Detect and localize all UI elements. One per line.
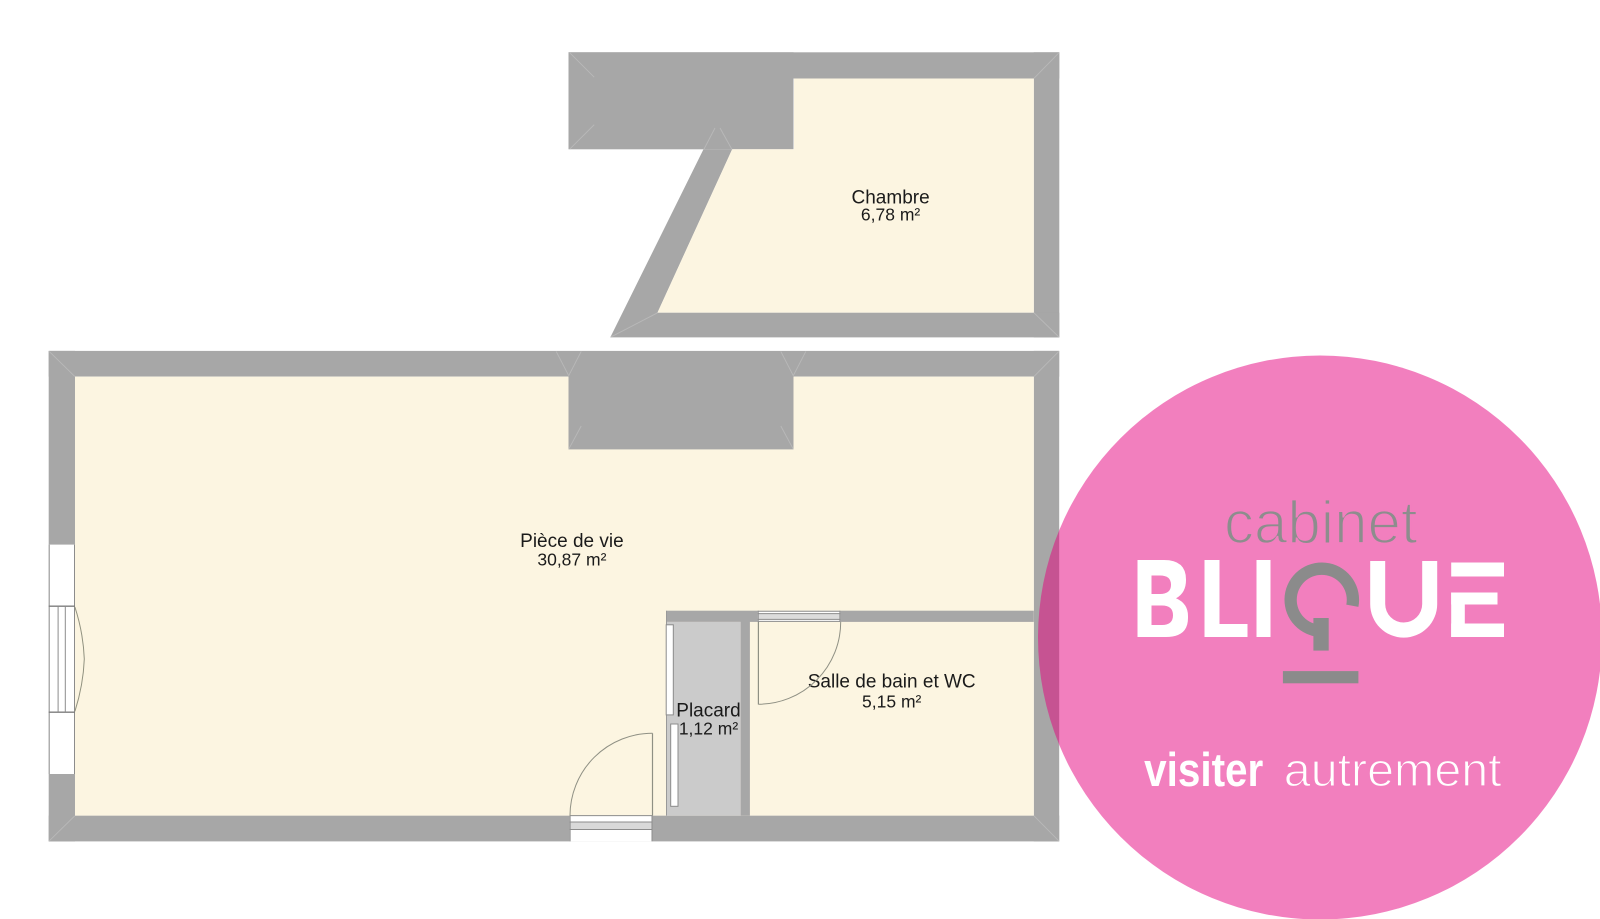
svg-text:1,12 m²: 1,12 m² bbox=[679, 718, 738, 738]
svg-text:cabinet: cabinet bbox=[1224, 489, 1418, 556]
svg-text:5,15 m²: 5,15 m² bbox=[862, 691, 921, 711]
svg-text:30,87 m²: 30,87 m² bbox=[537, 549, 606, 569]
svg-text:Salle de bain et WC: Salle de bain et WC bbox=[808, 672, 976, 693]
svg-text:autrement: autrement bbox=[1284, 743, 1502, 796]
svg-text:6,78 m²: 6,78 m² bbox=[861, 204, 920, 224]
svg-text:visiter: visiter bbox=[1144, 743, 1263, 796]
